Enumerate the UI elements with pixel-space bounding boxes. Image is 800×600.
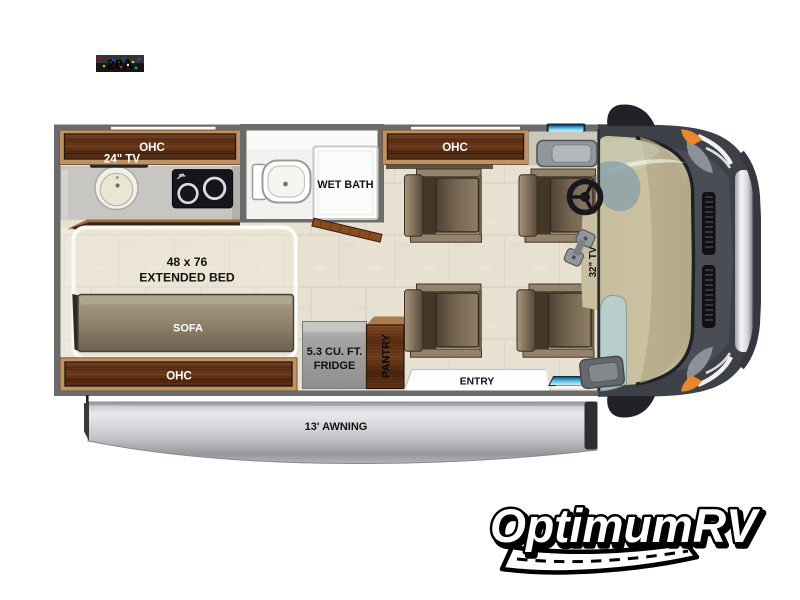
svg-text:5.3 CU. FT.: 5.3 CU. FT. <box>307 346 363 358</box>
svg-text:13' AWNING: 13' AWNING <box>305 421 368 433</box>
svg-text:WET BATH: WET BATH <box>317 179 373 191</box>
svg-text:OHC: OHC <box>139 142 165 154</box>
svg-text:20A: 20A <box>107 56 133 72</box>
svg-text:ENTRY: ENTRY <box>460 377 495 388</box>
svg-text:OptimumRV: OptimumRV <box>490 499 761 552</box>
svg-text:32" TV: 32" TV <box>588 246 599 277</box>
svg-text:24" TV: 24" TV <box>104 154 140 166</box>
svg-text:EXTENDED BED: EXTENDED BED <box>139 271 235 285</box>
svg-text:SOFA: SOFA <box>173 323 203 335</box>
svg-text:OHC: OHC <box>166 371 192 383</box>
svg-text:PANTRY: PANTRY <box>381 333 393 378</box>
svg-text:OHC: OHC <box>442 142 468 154</box>
svg-text:FRIDGE: FRIDGE <box>314 360 356 372</box>
svg-text:48 x 76: 48 x 76 <box>167 255 208 269</box>
